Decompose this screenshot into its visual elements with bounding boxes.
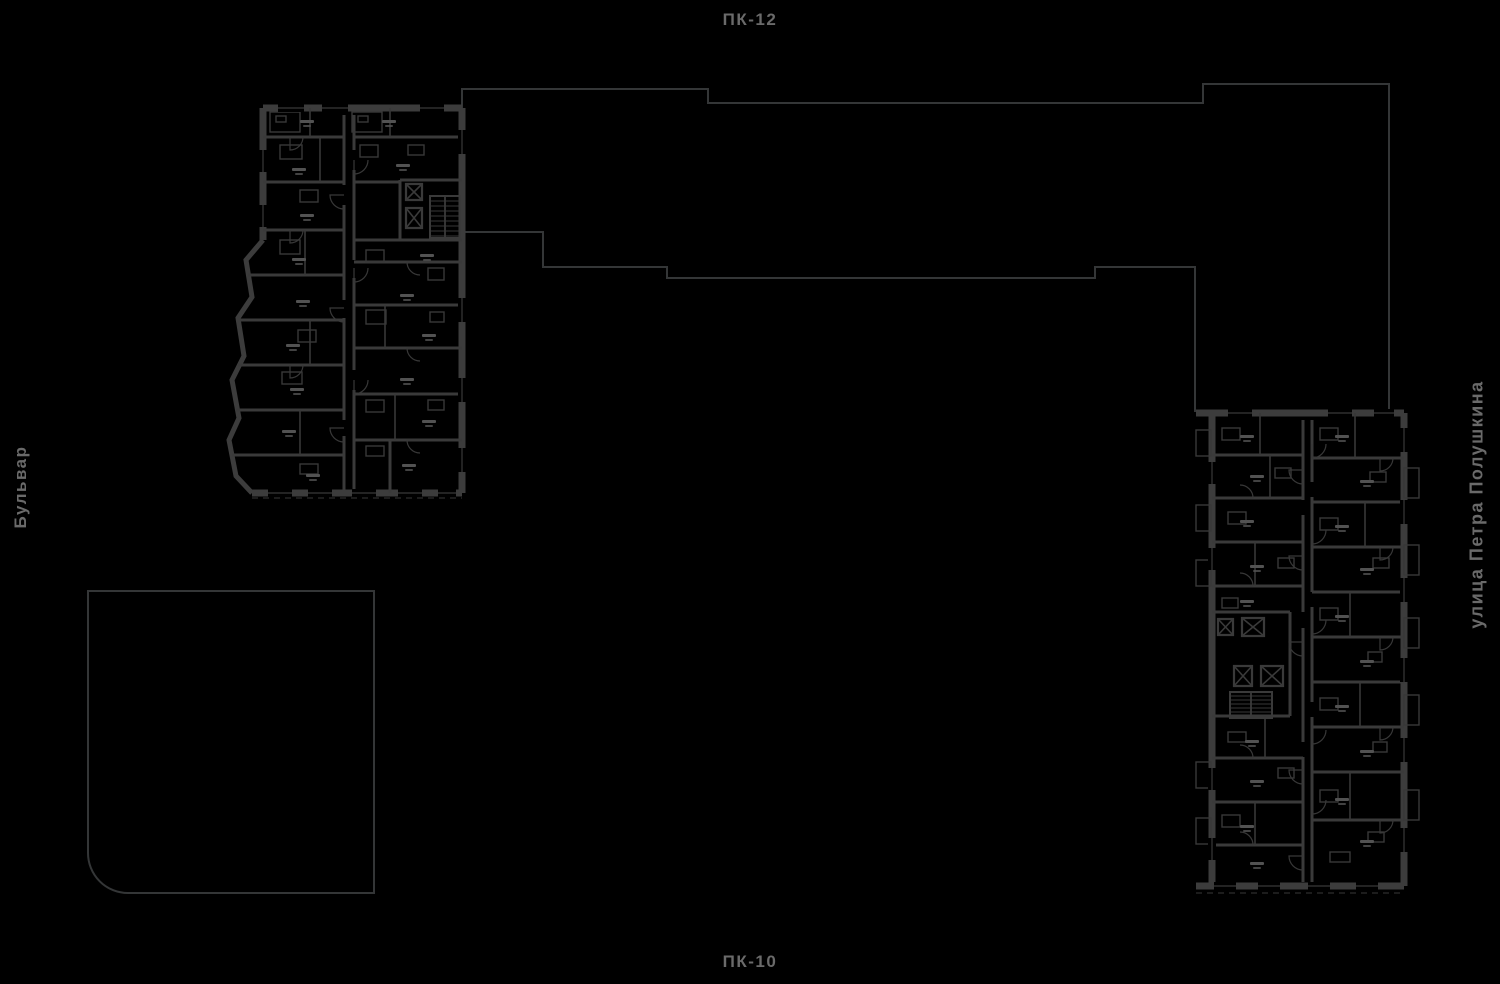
site-boundary-outline: [462, 84, 1389, 413]
street-label-boulevard: Бульвар: [11, 417, 31, 557]
axis-label-top: ПК-12: [0, 10, 1500, 30]
building-block-left: [229, 104, 466, 498]
building-block-right: [1196, 409, 1419, 893]
site-plan-stage: ПК-12 ПК-10 Бульвар улица Петра Полушкин…: [0, 0, 1500, 984]
axis-label-bottom: ПК-10: [0, 952, 1500, 972]
parcel-outline: [88, 591, 374, 893]
street-label-polushkina: улица Петра Полушкина: [1467, 335, 1488, 675]
floor-plan-canvas: [0, 0, 1500, 984]
